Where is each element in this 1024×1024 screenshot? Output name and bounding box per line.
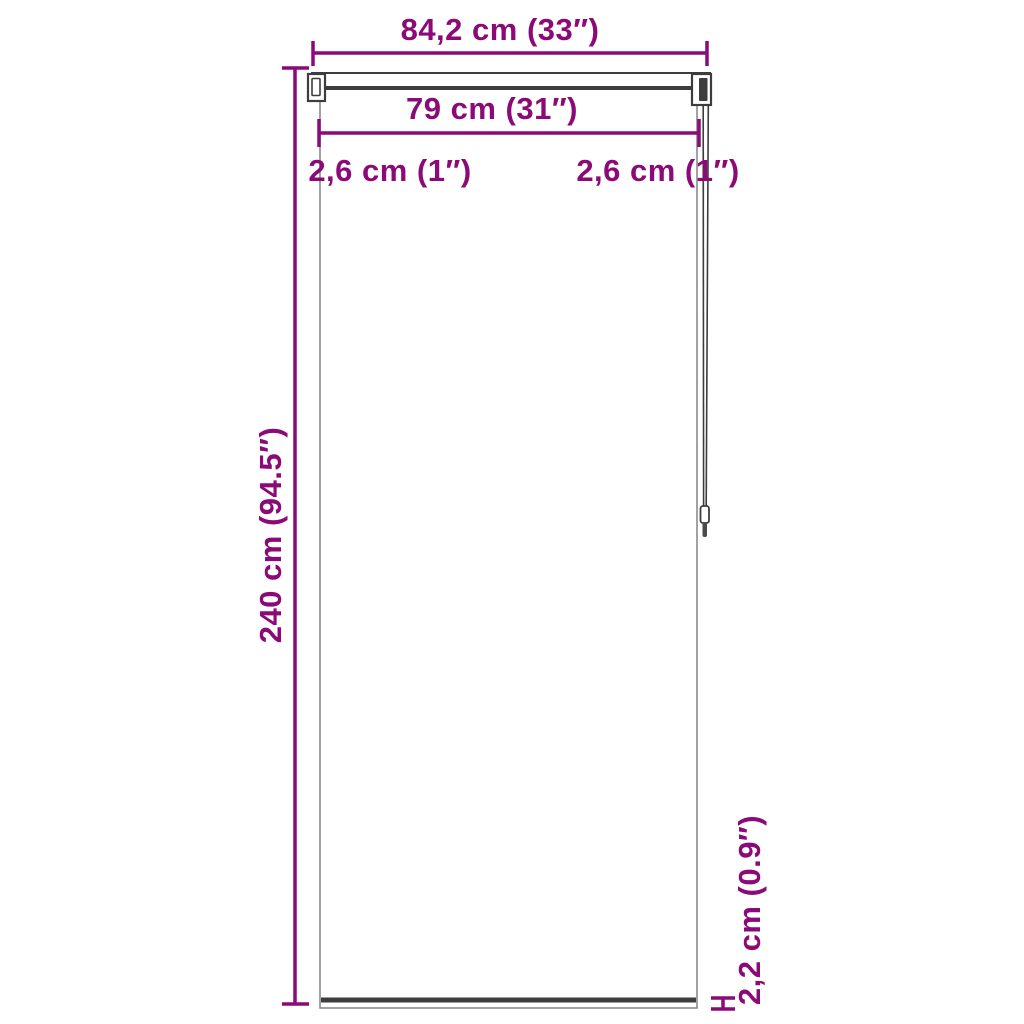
total-width-label: 84,2 cm (33″): [401, 12, 600, 47]
right-margin-label: 2,6 cm (1″): [576, 153, 739, 188]
diagram-svg: 84,2 cm (33″) 79 cm (31″) 2,6 cm (1″) 2,…: [0, 0, 1024, 1024]
blind-fabric: [320, 89, 697, 1008]
right-bracket: [692, 74, 711, 105]
height-label: 240 cm (94.5″): [253, 427, 288, 644]
cord-end-cap: [701, 506, 710, 523]
left-bracket: [308, 74, 325, 101]
bottom-bar-height-label: 2,2 cm (0.9″): [732, 815, 767, 1005]
product-dimension-diagram: 84,2 cm (33″) 79 cm (31″) 2,6 cm (1″) 2,…: [0, 0, 1024, 1024]
roller-blind-drawing: [308, 73, 711, 1008]
cord-end-tip: [703, 523, 708, 537]
left-margin-label: 2,6 cm (1″): [308, 153, 471, 188]
fabric-width-label: 79 cm (31″): [406, 91, 578, 126]
